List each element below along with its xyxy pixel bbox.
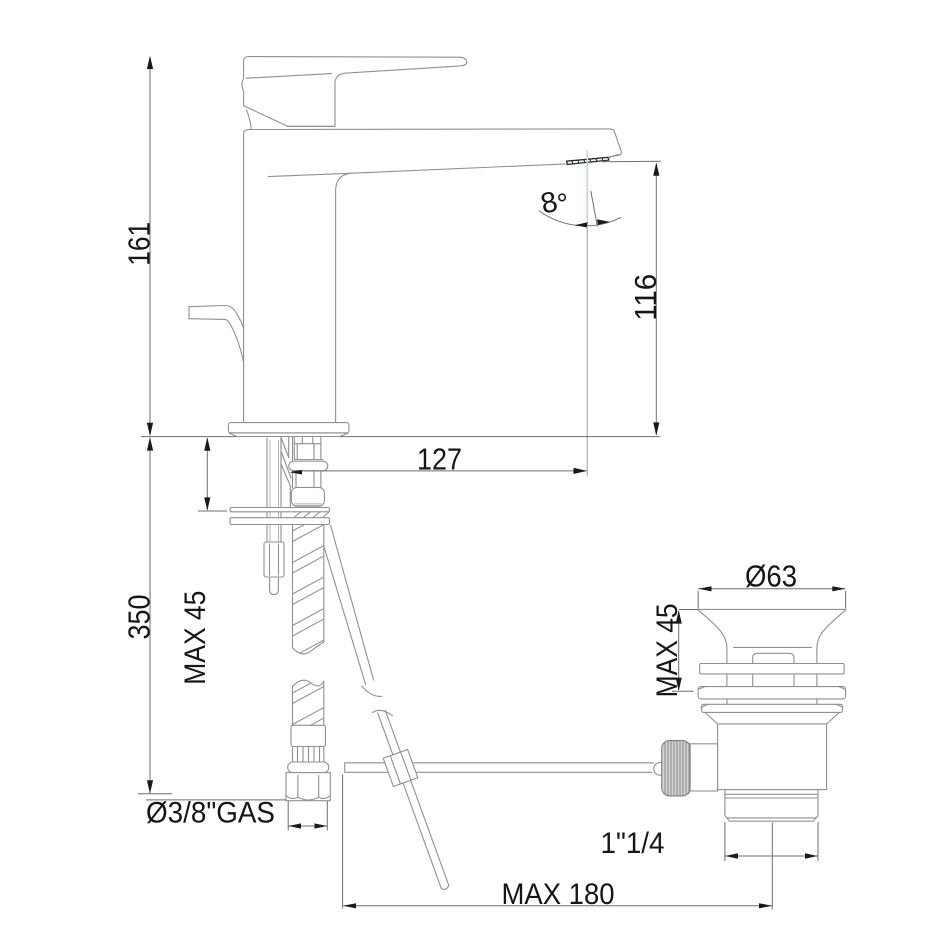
svg-text:350: 350	[123, 595, 157, 640]
svg-text:MAX 180: MAX 180	[502, 878, 615, 911]
svg-text:116: 116	[629, 274, 663, 321]
svg-text:1"1/4: 1"1/4	[601, 827, 665, 860]
svg-text:MAX 45: MAX 45	[651, 603, 684, 697]
svg-text:Ø63: Ø63	[745, 560, 797, 594]
svg-text:161: 161	[123, 222, 157, 266]
svg-text:Ø3/8"GAS: Ø3/8"GAS	[146, 797, 275, 830]
svg-text:127: 127	[417, 443, 462, 477]
svg-text:MAX 45: MAX 45	[179, 591, 212, 685]
